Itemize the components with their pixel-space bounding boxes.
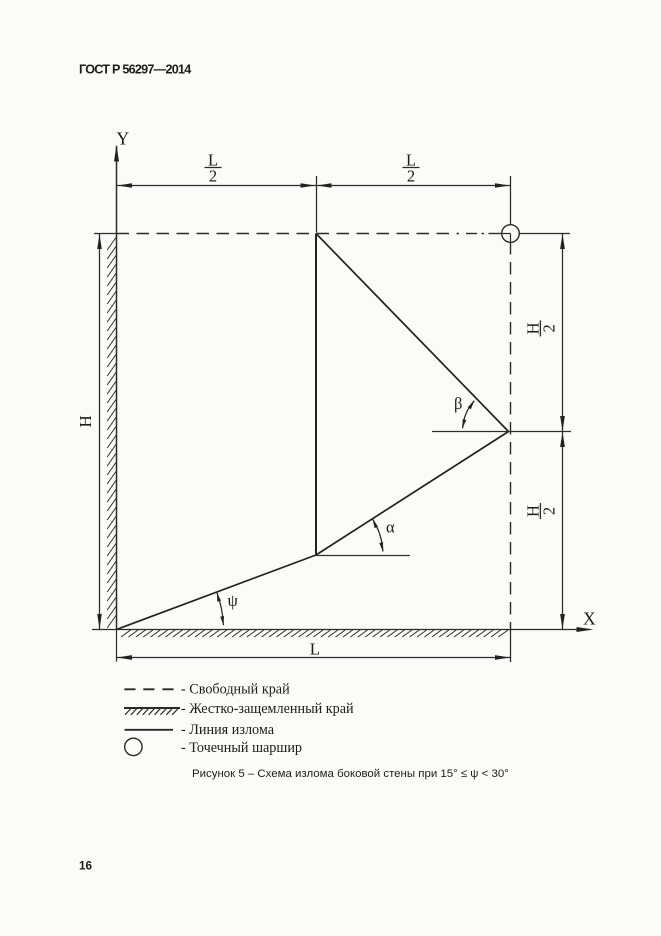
svg-text:L: L: [310, 640, 320, 659]
svg-text:H: H: [76, 415, 95, 427]
svg-text:- Точечный шаршир: - Точечный шаршир: [181, 740, 302, 756]
svg-text:2: 2: [407, 167, 415, 186]
svg-text:β: β: [454, 394, 462, 413]
svg-text:Y: Y: [117, 129, 130, 149]
svg-text:ψ: ψ: [228, 591, 239, 610]
svg-text:2: 2: [209, 167, 217, 186]
svg-text:16: 16: [79, 859, 93, 873]
svg-text:Рисунок 5 – Схема излома боков: Рисунок 5 – Схема излома боковой стены п…: [192, 768, 509, 780]
svg-text:- Жестко-защемленный край: - Жестко-защемленный край: [181, 701, 354, 717]
svg-text:2: 2: [540, 507, 559, 515]
svg-text:ГОСТ Р 56297—2014: ГОСТ Р 56297—2014: [79, 63, 191, 77]
svg-text:2: 2: [540, 324, 559, 332]
svg-text:X: X: [583, 608, 596, 628]
svg-text:- Линия излома: - Линия излома: [181, 722, 275, 738]
svg-text:- Свободный край: - Свободный край: [181, 682, 290, 698]
svg-text:α: α: [386, 518, 395, 537]
